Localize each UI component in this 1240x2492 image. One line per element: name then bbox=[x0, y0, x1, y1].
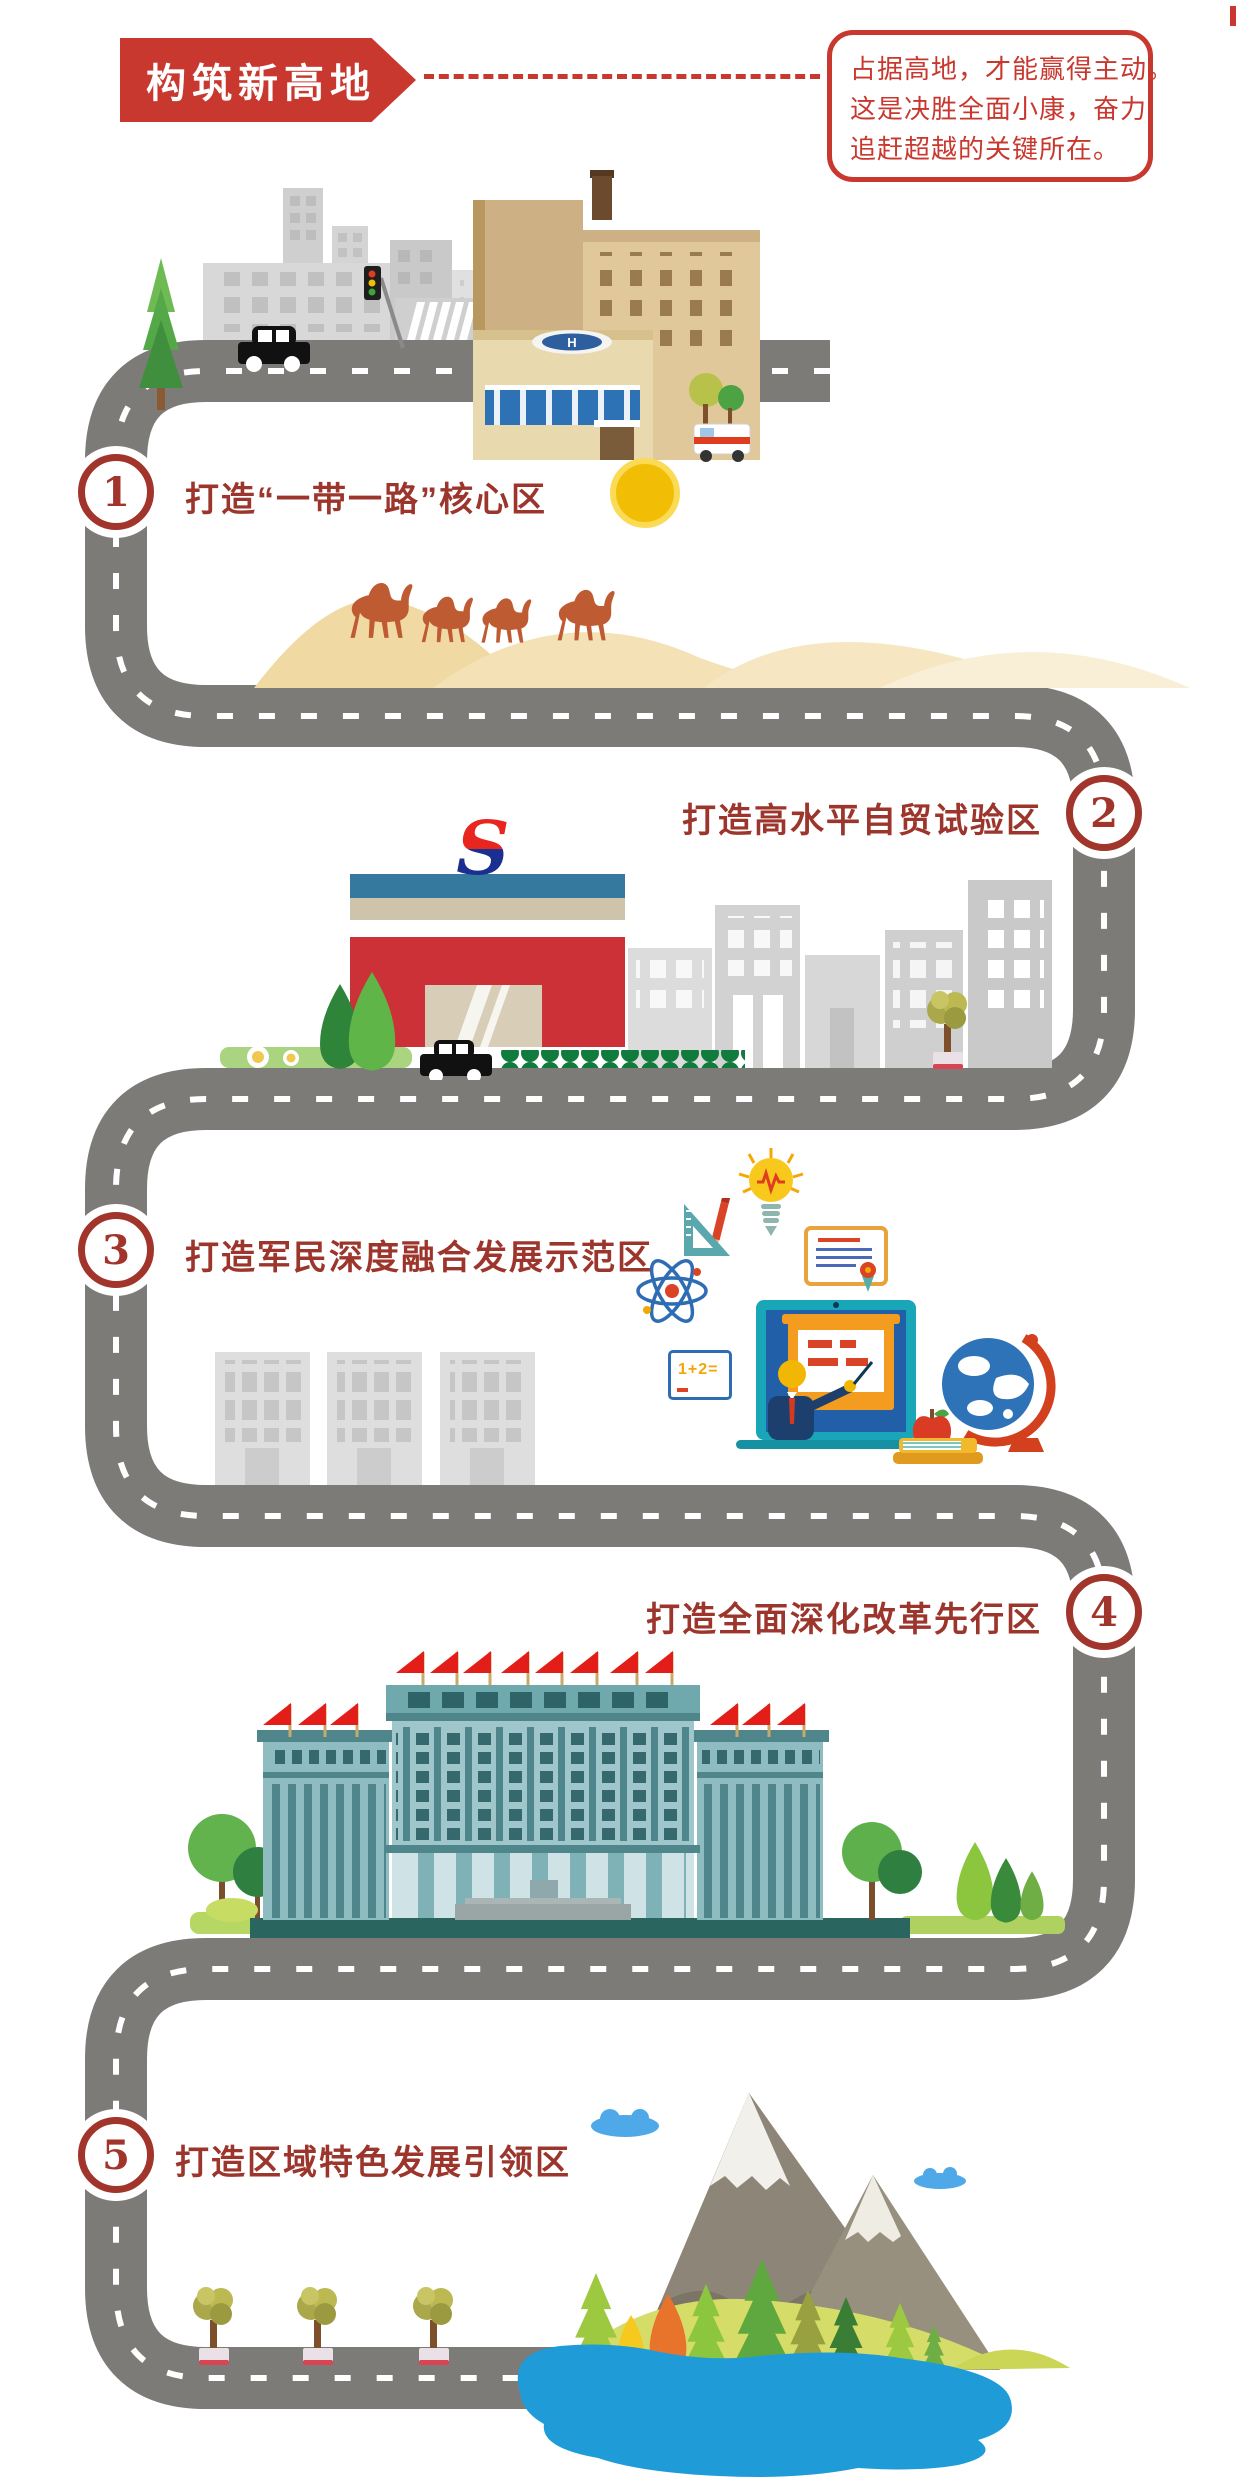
company-logo-icon: S bbox=[456, 806, 509, 892]
infographic-poster: 构筑新高地 占据高地，才能赢得主动。 这是决胜全面小康，奋力 追赶超越的关键所在… bbox=[0, 0, 1240, 2492]
quote-line: 占据高地，才能赢得主动。 bbox=[850, 49, 1130, 89]
helipad-letter: H bbox=[567, 335, 576, 350]
hospital-building-icon: H bbox=[473, 170, 760, 460]
milestone-3-label: 打造军民深度融合发展示范区 bbox=[185, 1230, 653, 1279]
camel-icon bbox=[481, 598, 531, 642]
red-dash-mark bbox=[1230, 6, 1236, 26]
lightbulb-icon bbox=[732, 1146, 810, 1242]
desert-illustration bbox=[150, 555, 1210, 750]
math-board-text: 1+2= bbox=[678, 1361, 718, 1379]
milestone-5-number: 5 bbox=[78, 2117, 154, 2193]
lake-icon bbox=[518, 2344, 1012, 2477]
quote-line: 这是决胜全面小康，奋力 bbox=[850, 89, 1130, 129]
milestone-3-number: 3 bbox=[78, 1212, 154, 1288]
hedge-icon bbox=[500, 1050, 745, 1068]
crosswalk-icon bbox=[395, 298, 477, 340]
milestone-2-badge: 2 bbox=[1058, 767, 1150, 859]
pine-tree-icon bbox=[991, 1858, 1021, 1923]
milestone-5-label: 打造区域特色发展引领区 bbox=[175, 2135, 571, 2184]
chalk-mark bbox=[677, 1388, 688, 1392]
free-trade-illustration: S bbox=[200, 800, 1080, 1080]
quote-line: 追赶超越的关键所在。 bbox=[850, 129, 1130, 169]
page-title: 构筑新高地 bbox=[146, 51, 376, 109]
sun-icon bbox=[610, 458, 680, 528]
pine-tree-icon bbox=[1020, 1871, 1043, 1920]
pine-tree-icon bbox=[957, 1842, 994, 1920]
dashed-connector-line bbox=[424, 74, 820, 79]
milestone-4-badge: 4 bbox=[1058, 1566, 1150, 1658]
milestone-5-badge: 5 bbox=[70, 2109, 162, 2201]
gray-buildings-icon bbox=[205, 1348, 545, 1488]
globe-icon bbox=[936, 1326, 1058, 1456]
potted-tree-icon bbox=[297, 2287, 337, 2365]
milestone-1-badge: 1 bbox=[70, 446, 162, 538]
free-trade-building-icon: S bbox=[350, 806, 625, 1047]
milestone-2-number: 2 bbox=[1066, 775, 1142, 851]
quote-box: 占据高地，才能赢得主动。 这是决胜全面小康，奋力 追赶超越的关键所在。 bbox=[827, 30, 1153, 182]
pine-tree-icon bbox=[139, 258, 183, 410]
roadside-trees bbox=[180, 2280, 480, 2375]
city-hospital-illustration: H bbox=[80, 165, 1100, 465]
certificate-icon bbox=[804, 1226, 888, 1292]
books-icon bbox=[893, 1438, 983, 1464]
milestone-4-label: 打造全面深化改革先行区 bbox=[646, 1592, 1042, 1641]
round-tree-icon bbox=[842, 1822, 922, 1920]
milestone-1-number: 1 bbox=[78, 454, 154, 530]
milestone-1-label: 打造“一带一路”核心区 bbox=[185, 472, 547, 521]
potted-tree-icon bbox=[193, 2287, 233, 2365]
potted-tree-icon bbox=[413, 2287, 453, 2365]
milestone-4-number: 4 bbox=[1066, 1574, 1142, 1650]
math-board-icon: 1+2= bbox=[668, 1350, 732, 1400]
milestone-2-label: 打造高水平自贸试验区 bbox=[682, 793, 1042, 842]
government-illustration bbox=[130, 1645, 1080, 1943]
title-banner: 构筑新高地 bbox=[120, 38, 416, 122]
milestone-3-badge: 3 bbox=[70, 1204, 162, 1296]
gray-buildings-icon bbox=[628, 880, 1052, 1068]
grass-strip-icon bbox=[900, 1916, 1065, 1934]
